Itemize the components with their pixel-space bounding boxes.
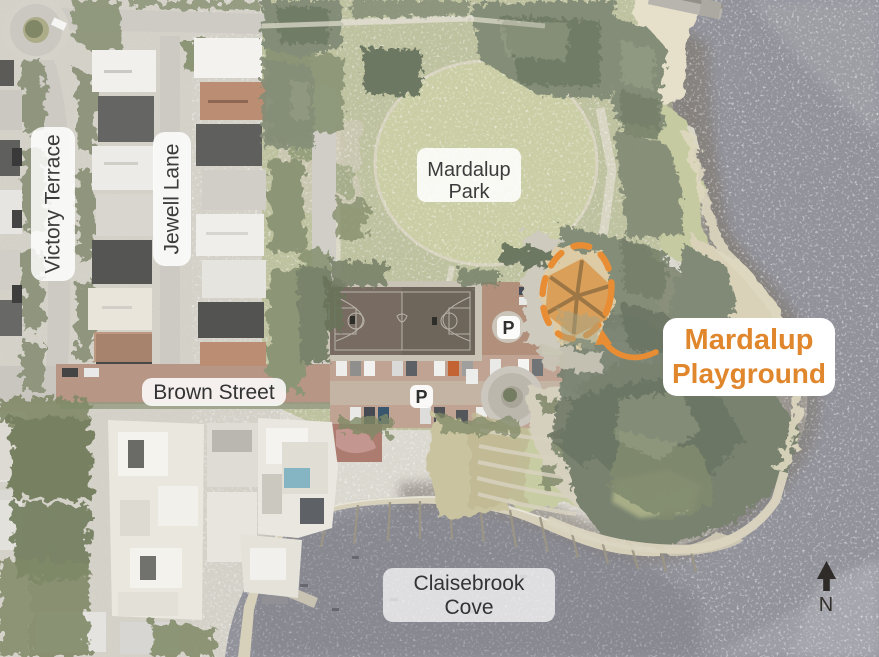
svg-text:Playground: Playground [672,358,826,389]
svg-text:Jewell Lane: Jewell Lane [161,144,184,255]
svg-text:P: P [415,387,427,407]
svg-text:Cove: Cove [444,596,493,619]
svg-text:Claisebrook: Claisebrook [414,572,525,595]
svg-text:Victory Terrace: Victory Terrace [42,134,65,273]
svg-text:Park: Park [448,181,490,203]
svg-text:Mardalup: Mardalup [427,159,510,181]
svg-text:Brown Street: Brown Street [153,381,275,404]
svg-text:Mardalup: Mardalup [685,324,814,356]
svg-text:N: N [819,594,833,616]
svg-text:P: P [502,318,514,338]
